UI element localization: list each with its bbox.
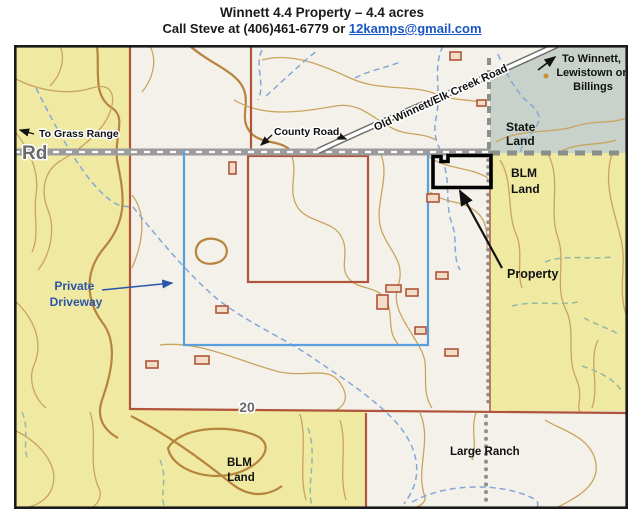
- to-grass-range-label: To Grass Range: [39, 128, 119, 140]
- building-marker: [406, 289, 418, 296]
- property-label: Property: [507, 267, 558, 281]
- property-map: Rd To Grass Range County Road Old Winnet…: [14, 45, 628, 509]
- rd-road-label: Rd: [22, 143, 47, 164]
- building-marker: [427, 194, 439, 202]
- route-20-label: 20: [239, 399, 255, 415]
- map-svg: Rd To Grass Range County Road Old Winnet…: [14, 45, 628, 509]
- contact-text: Call Steve at (406)461-6779 or: [162, 21, 348, 36]
- state-land-label: State Land: [506, 120, 539, 148]
- header: Winnett 4.4 Property – 4.4 acres Call St…: [0, 4, 644, 37]
- page-title: Winnett 4.4 Property – 4.4 acres: [0, 4, 644, 21]
- building-marker: [195, 356, 209, 364]
- building-marker: [477, 100, 486, 106]
- building-marker: [146, 361, 158, 368]
- contact-line: Call Steve at (406)461-6779 or 12kamps@g…: [0, 21, 644, 37]
- building-marker: [445, 349, 458, 356]
- large-ranch-label: Large Ranch: [450, 446, 520, 458]
- county-road-label: County Road: [274, 126, 339, 138]
- email-link[interactable]: 12kamps@gmail.com: [349, 21, 482, 36]
- spot-elevation-dot: [544, 74, 549, 79]
- building-marker: [216, 306, 228, 313]
- building-marker: [436, 272, 448, 279]
- building-marker: [377, 295, 388, 309]
- page: Winnett 4.4 Property – 4.4 acres Call St…: [0, 0, 644, 529]
- building-marker: [229, 162, 236, 174]
- building-marker: [386, 285, 401, 292]
- building-marker: [450, 52, 461, 60]
- building-marker: [415, 327, 426, 334]
